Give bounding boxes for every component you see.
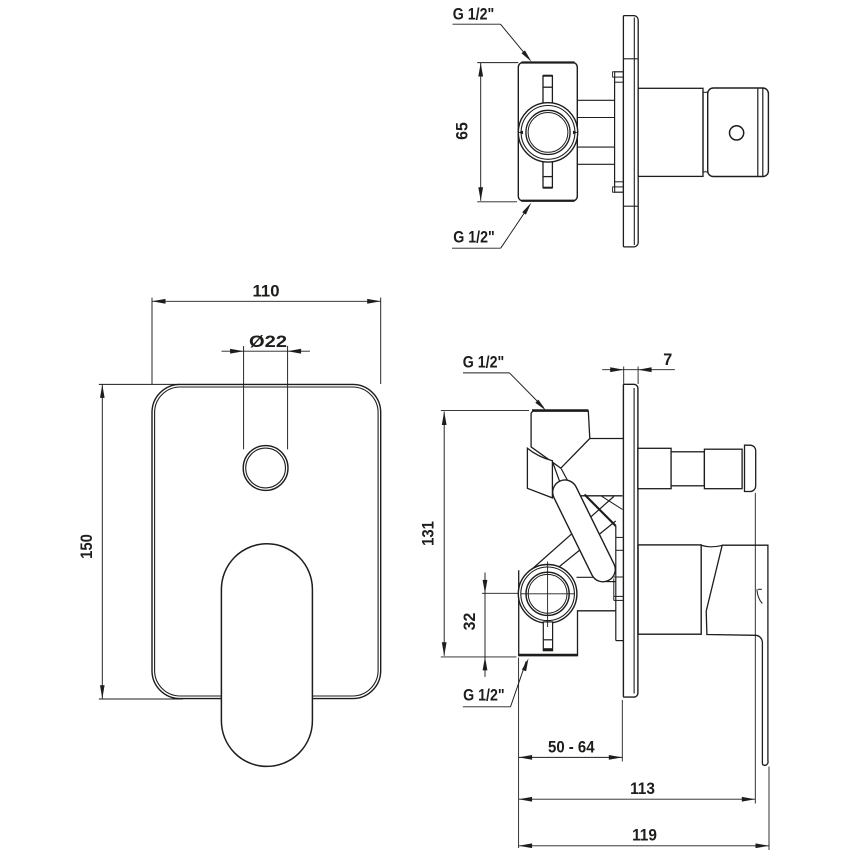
- svg-text:G 1/2": G 1/2": [463, 353, 505, 371]
- svg-text:G 1/2": G 1/2": [453, 229, 495, 247]
- svg-text:119: 119: [632, 827, 657, 845]
- svg-text:G 1/2": G 1/2": [453, 6, 495, 24]
- svg-text:50 - 64: 50 - 64: [548, 739, 595, 757]
- svg-text:131: 131: [420, 521, 438, 546]
- svg-text:7: 7: [663, 351, 672, 369]
- svg-text:110: 110: [253, 283, 280, 301]
- svg-text:150: 150: [78, 534, 96, 559]
- svg-text:32: 32: [461, 613, 479, 631]
- svg-text:113: 113: [630, 780, 655, 798]
- svg-text:Ø22: Ø22: [249, 333, 287, 351]
- svg-text:G 1/2": G 1/2": [463, 687, 505, 705]
- svg-text:65: 65: [454, 122, 472, 140]
